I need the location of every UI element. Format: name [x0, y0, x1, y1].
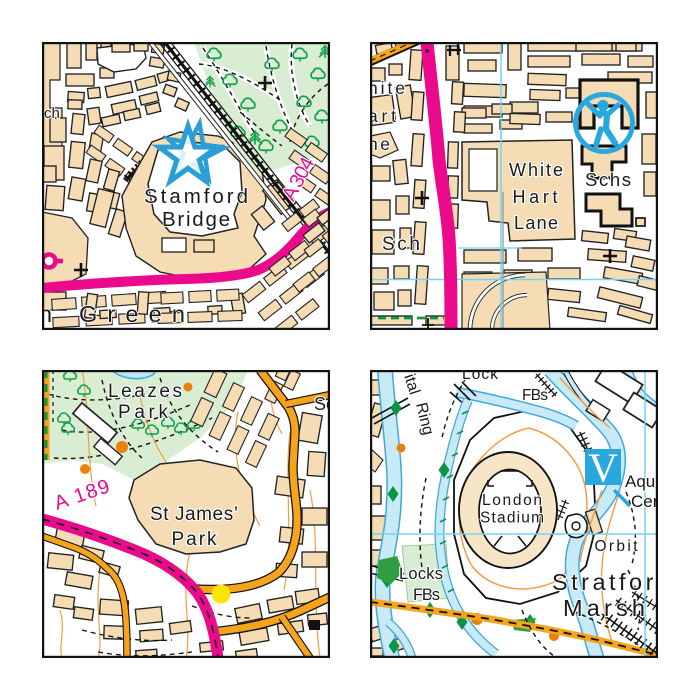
svg-text:Aqua: Aqua: [625, 472, 658, 491]
svg-text:Sc: Sc: [314, 394, 330, 414]
svg-text:art: art: [370, 106, 396, 126]
svg-text:Cen: Cen: [631, 492, 658, 511]
svg-text:A 189: A 189: [51, 475, 112, 514]
svg-text:FBs: FBs: [522, 387, 548, 404]
svg-text:Park: Park: [172, 529, 218, 550]
svg-text:White: White: [509, 160, 563, 180]
svg-text:FBs: FBs: [413, 586, 440, 604]
svg-text:ital: ital: [400, 372, 422, 397]
svg-text:Stadium: Stadium: [480, 510, 544, 527]
svg-text:Ring: Ring: [412, 401, 436, 437]
svg-text:Marsh: Marsh: [563, 595, 645, 621]
svg-text:St James’: St James’: [150, 504, 238, 525]
svg-text:V: V: [588, 445, 618, 491]
svg-text:ne: ne: [370, 134, 390, 154]
svg-text:Park: Park: [118, 402, 169, 423]
svg-text:Schs: Schs: [585, 169, 631, 190]
svg-text:Lane: Lane: [514, 213, 558, 233]
svg-text:Sch: Sch: [382, 234, 420, 255]
svg-text:hite: hite: [370, 78, 405, 98]
svg-text:Bridge: Bridge: [162, 208, 230, 231]
svg-text:Locks: Locks: [399, 565, 443, 583]
svg-text:ch: ch: [44, 105, 60, 122]
svg-text:Orbit: Orbit: [595, 538, 639, 555]
